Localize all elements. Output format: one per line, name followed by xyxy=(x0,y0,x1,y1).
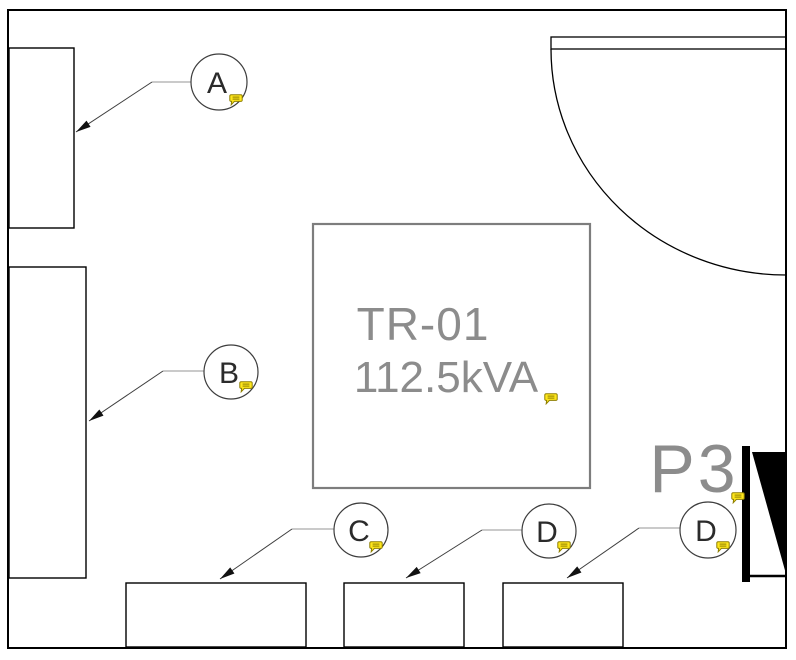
callout-c[interactable]: C xyxy=(220,503,388,579)
callout-a[interactable]: A xyxy=(76,54,247,132)
transformer-tr01: TR-01 112.5kVA xyxy=(313,224,590,488)
floor-plan-drawing: TR-01 112.5kVA P3 A B C xyxy=(0,0,796,660)
comment-bubble-icon-tr01[interactable] xyxy=(545,394,557,404)
callout-a-leader-arrow xyxy=(76,82,152,132)
panel-mount-bar xyxy=(742,446,750,582)
door xyxy=(551,37,786,275)
equipment-block-c xyxy=(126,583,306,647)
callout-c-letter: C xyxy=(348,515,370,548)
callout-d1-letter: D xyxy=(536,516,558,549)
panel-body-triangle xyxy=(752,452,786,574)
callout-b-letter: B xyxy=(219,357,239,390)
equipment-block-d2 xyxy=(503,583,623,647)
callout-d1[interactable]: D xyxy=(406,504,576,578)
door-swing-arc xyxy=(551,49,786,275)
callout-d2-leader-arrow xyxy=(567,528,639,578)
callout-d2-letter: D xyxy=(695,515,717,548)
transformer-tag-label: TR-01 xyxy=(357,298,490,350)
transformer-rating-label: 112.5kVA xyxy=(354,353,539,402)
callout-d2[interactable]: D xyxy=(567,502,736,578)
equipment-block-a xyxy=(9,48,74,228)
equipment-block-b xyxy=(9,267,86,578)
equipment-block-d1 xyxy=(344,583,464,647)
callout-c-leader-arrow xyxy=(220,529,292,579)
callout-b[interactable]: B xyxy=(89,345,258,421)
door-leaf xyxy=(551,37,786,49)
callout-a-letter: A xyxy=(207,67,227,100)
panel-p3-symbol xyxy=(742,446,786,582)
callout-d1-leader-arrow xyxy=(406,530,482,578)
panel-p3-label: P3 xyxy=(649,431,738,507)
floor-plan-canvas: TR-01 112.5kVA P3 A B C xyxy=(0,0,796,660)
callout-b-leader-arrow xyxy=(89,371,163,421)
